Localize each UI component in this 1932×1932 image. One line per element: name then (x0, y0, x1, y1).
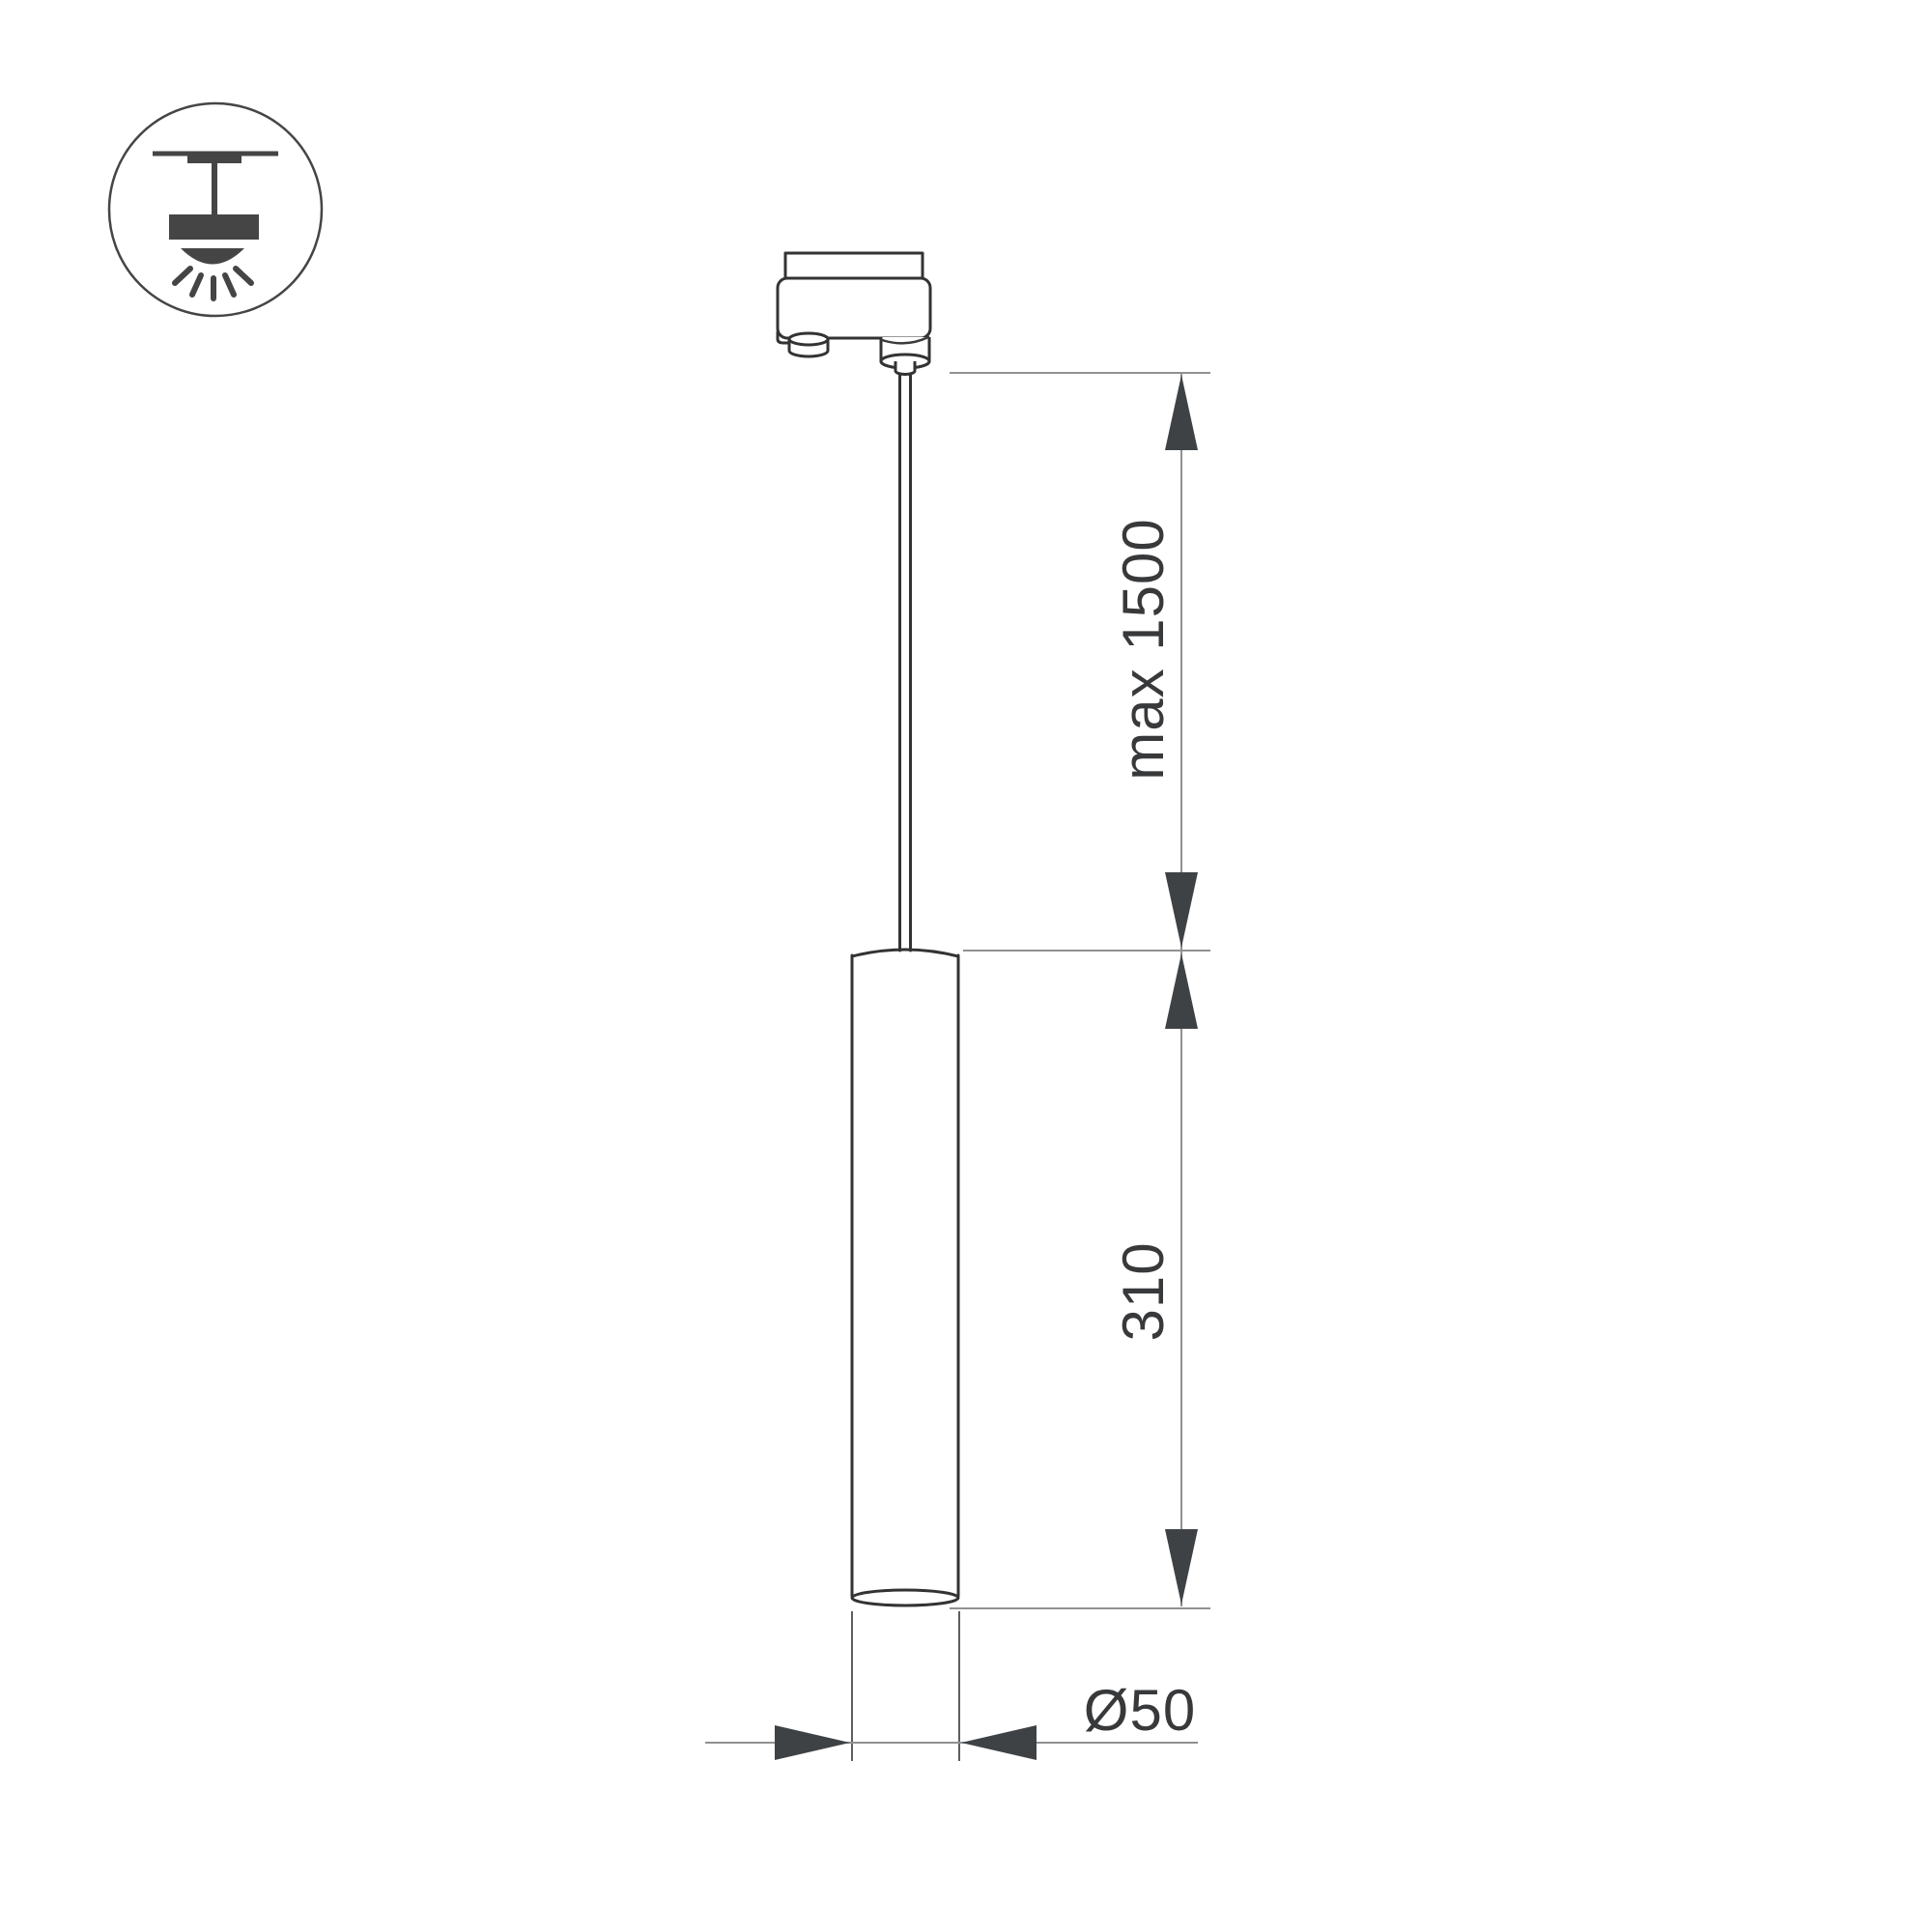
icon-light-rays (175, 269, 251, 298)
icon-lamp-body (169, 214, 259, 240)
pendant-lamp-dimension-drawing: max 1500 310 Ø50 (0, 0, 1932, 1932)
suspension-cord (900, 374, 911, 951)
arrow-down-icon (1165, 1529, 1198, 1605)
adapter-track-tab (785, 253, 923, 277)
tube-bottom-rim (852, 1590, 958, 1605)
lamp-tube (852, 950, 958, 1605)
arrow-down-icon (1165, 872, 1198, 948)
adapter-lock-knob-rim (789, 333, 828, 345)
adapter-cord-nipple (895, 361, 915, 375)
arrow-up-icon (1165, 375, 1198, 450)
dimension-suspension-length: max 1500 (950, 373, 1210, 1606)
tube-top-edge (852, 950, 958, 956)
arrow-up-icon (1165, 953, 1198, 1029)
icon-ray (175, 269, 190, 283)
icon-light-dome (181, 248, 244, 265)
track-adapter (778, 253, 930, 375)
label-suspension-length: max 1500 (1111, 518, 1176, 781)
dimension-tube-height: 310 (950, 953, 1210, 1608)
icon-ray (236, 269, 251, 283)
dimension-diameter: Ø50 (705, 1611, 1198, 1761)
label-diameter: Ø50 (1084, 1678, 1196, 1743)
ceiling-pendant-mount-icon (109, 103, 322, 316)
label-tube-height: 310 (1111, 1241, 1176, 1341)
icon-ray (225, 275, 234, 295)
arrow-right-icon (775, 1725, 850, 1760)
arrow-left-icon (961, 1725, 1037, 1760)
icon-ray (192, 275, 201, 295)
adapter-body (778, 278, 930, 338)
